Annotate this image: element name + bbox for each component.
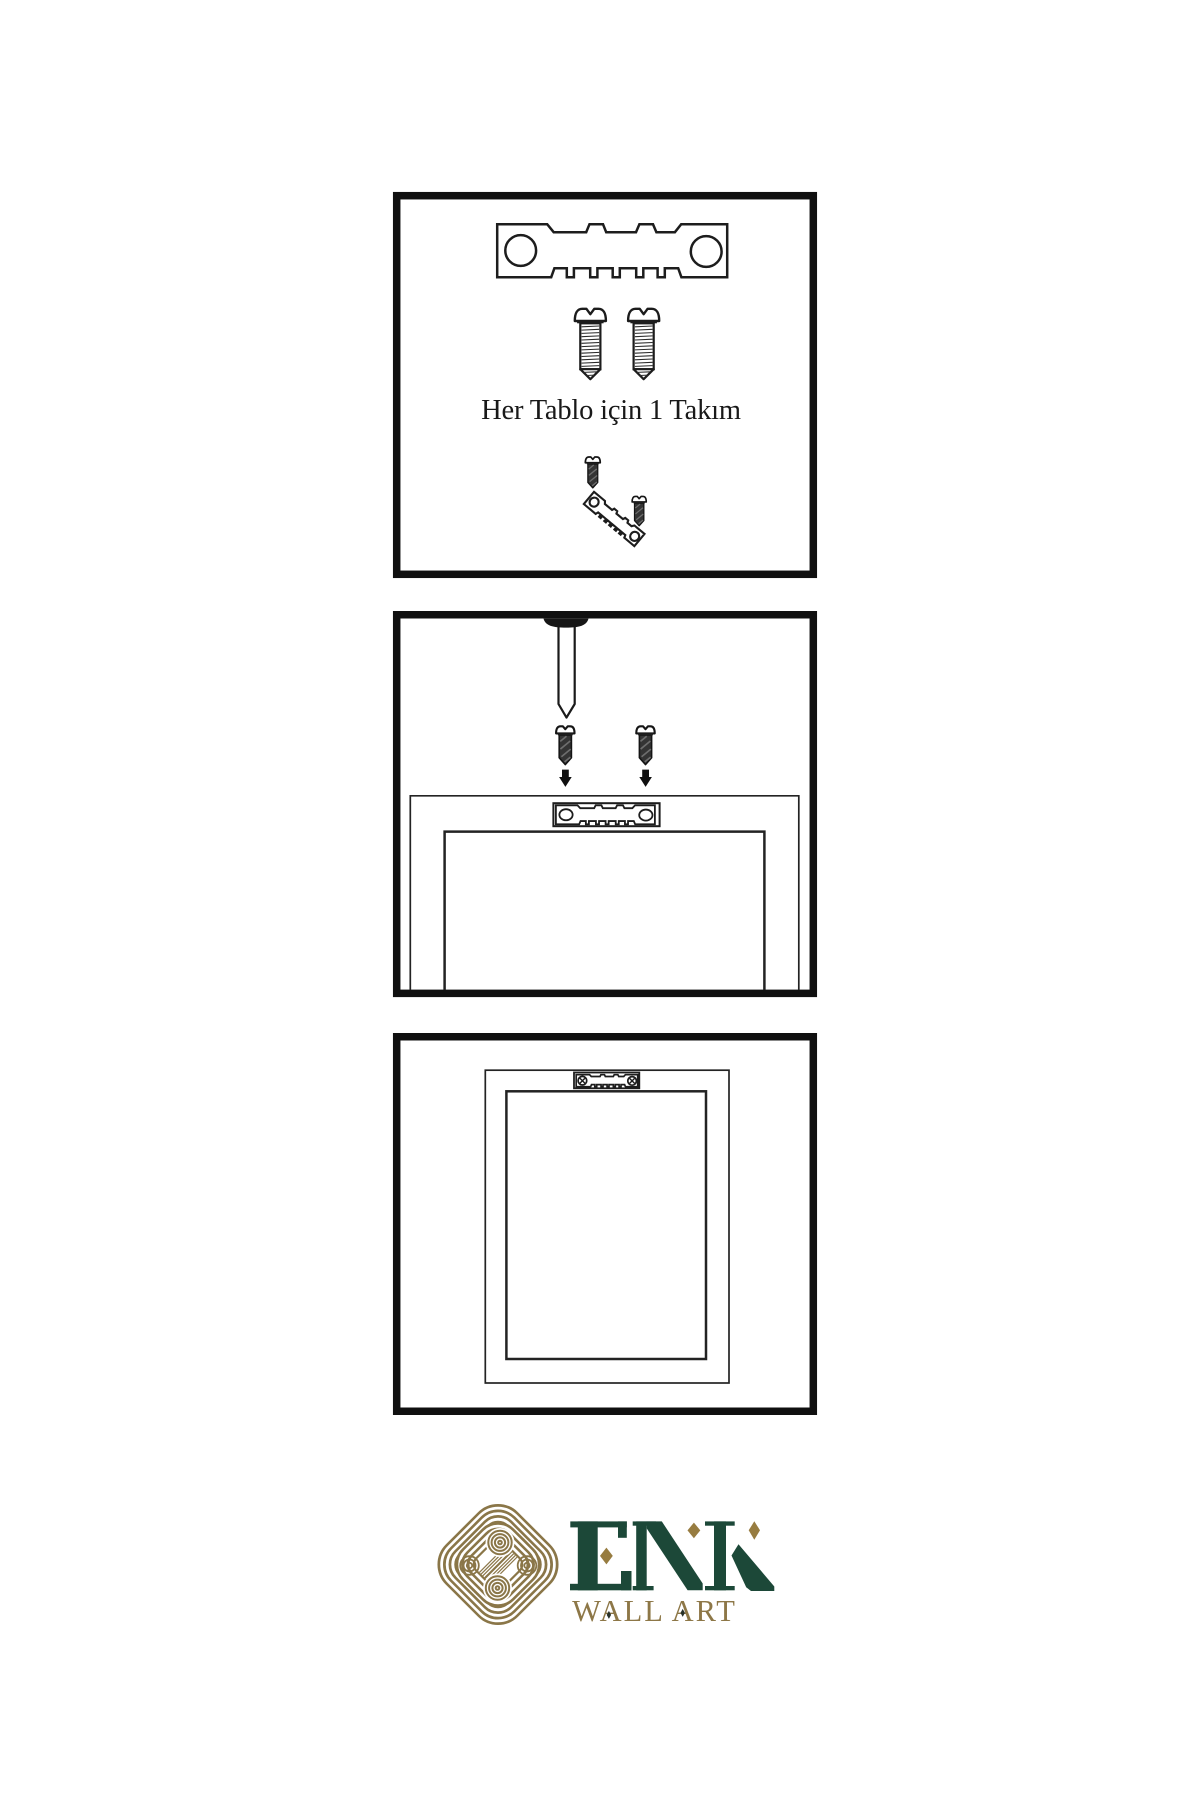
svg-text:WALL ART: WALL ART [572,1594,737,1628]
svg-text:Her Tablo için 1 Takım: Her Tablo için 1 Takım [481,395,741,426]
